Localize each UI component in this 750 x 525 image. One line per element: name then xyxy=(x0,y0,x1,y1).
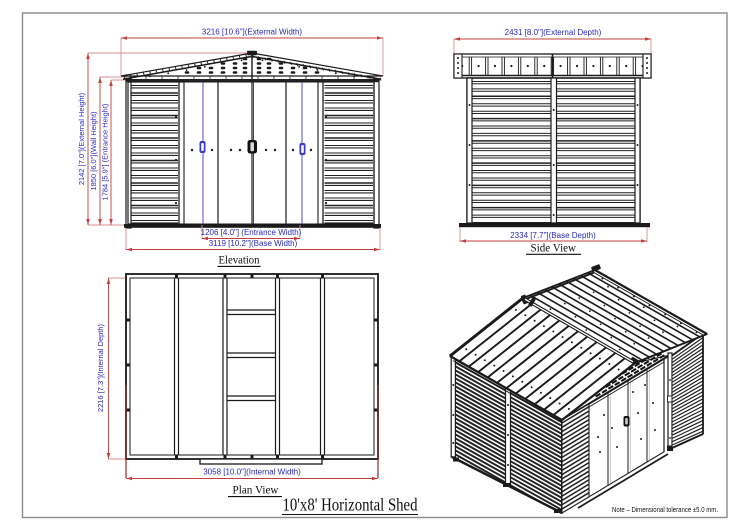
svg-text:Note – Dimensional tolerance: Note – Dimensional tolerance ±5.0 mm. xyxy=(612,505,718,514)
svg-text:3119 [10.2"](Base Width): 3119 [10.2"](Base Width) xyxy=(209,239,298,248)
svg-text:2431 [8.0"](External Depth): 2431 [8.0"](External Depth) xyxy=(505,28,602,37)
svg-text:2334 [7.7"](Base Depth): 2334 [7.7"](Base Depth) xyxy=(510,231,596,240)
svg-text:Elevation: Elevation xyxy=(219,254,260,267)
svg-text:1850 [6.0"](Wall Height): 1850 [6.0"](Wall Height) xyxy=(89,111,98,191)
svg-text:3058 [10.0"](Internal Width): 3058 [10.0"](Internal Width) xyxy=(203,468,301,477)
svg-text:10'x8' Horizontal Shed: 10'x8' Horizontal Shed xyxy=(283,495,418,515)
svg-text:2216 [7.3"](Internal Depth): 2216 [7.3"](Internal Depth) xyxy=(96,323,105,412)
svg-text:Side View: Side View xyxy=(531,241,577,255)
svg-text:1206 [4.0"] (Entrance Width): 1206 [4.0"] (Entrance Width) xyxy=(201,228,302,237)
svg-text:1784 [5.9"] (Entrance Height): 1784 [5.9"] (Entrance Height) xyxy=(101,103,110,200)
svg-text:3216 [10.6"](External Width): 3216 [10.6"](External Width) xyxy=(202,28,303,37)
svg-text:Plan View: Plan View xyxy=(233,483,279,497)
svg-text:2142 [7.0"](External Height): 2142 [7.0"](External Height) xyxy=(77,92,86,185)
